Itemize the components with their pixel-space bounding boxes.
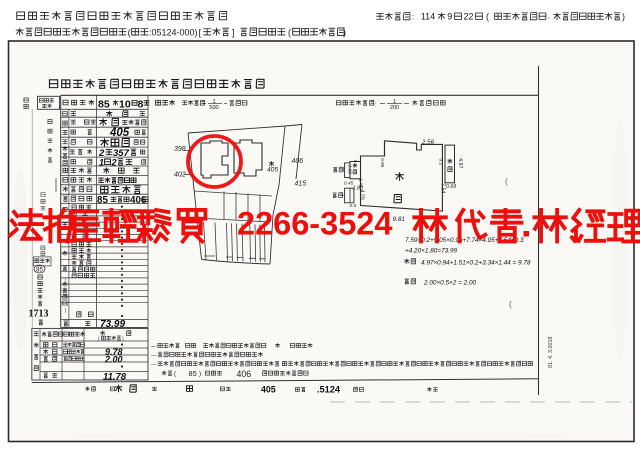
svg-text:22: 22: [464, 12, 474, 22]
svg-text:1: 1: [393, 99, 396, 105]
svg-text:+4.20×1.80=73.99: +4.20×1.80=73.99: [405, 248, 458, 255]
svg-text:(: (: [509, 300, 512, 309]
svg-text:(: (: [128, 28, 131, 38]
svg-text:85: 85: [189, 369, 197, 378]
svg-text:85: 85: [36, 267, 43, 273]
svg-text:.5124: .5124: [317, 385, 341, 395]
svg-text:0.2: 0.2: [438, 159, 444, 166]
svg-text::05124-000): :05124-000): [149, 28, 198, 38]
svg-text:85: 85: [97, 195, 108, 206]
svg-text:0.69: 0.69: [446, 184, 456, 190]
svg-text:398: 398: [174, 146, 186, 153]
svg-text:200: 200: [390, 105, 399, 111]
svg-text:1713: 1713: [29, 309, 49, 320]
svg-text:0.96: 0.96: [379, 158, 385, 168]
svg-text:,: ,: [548, 13, 550, 20]
svg-text:2266-3524: 2266-3524: [237, 206, 392, 242]
svg-text::: :: [412, 13, 414, 22]
svg-text:): ): [199, 371, 201, 378]
svg-text:7.54: 7.54: [440, 183, 446, 194]
svg-text:2.56: 2.56: [421, 139, 435, 146]
svg-text:9: 9: [447, 12, 452, 22]
svg-text:9.81: 9.81: [393, 216, 406, 223]
svg-text:2.00×0.5×2 = 2.00: 2.00×0.5×2 = 2.00: [423, 280, 477, 287]
svg-text:1: 1: [212, 99, 215, 105]
svg-text:405: 405: [267, 167, 278, 174]
svg-text:—: —: [151, 344, 157, 350]
svg-text:406: 406: [292, 158, 304, 165]
svg-text:405: 405: [261, 385, 276, 395]
svg-text:500: 500: [209, 105, 218, 111]
svg-text:—: —: [151, 362, 157, 368]
svg-text:405: 405: [109, 127, 130, 139]
svg-text:(: (: [505, 177, 508, 186]
svg-text:]: ]: [232, 28, 235, 38]
svg-text:0.2: 0.2: [353, 160, 358, 167]
svg-text:(: (: [486, 12, 489, 22]
svg-text:11.78: 11.78: [103, 372, 127, 383]
svg-text:—: —: [151, 353, 157, 359]
svg-text:81. 4. 3.0018: 81. 4. 3.0018: [548, 337, 554, 368]
svg-text:415: 415: [295, 181, 307, 188]
svg-text:10: 10: [119, 99, 131, 111]
svg-text:(: (: [288, 28, 291, 38]
svg-text:1: 1: [99, 158, 104, 168]
svg-text:2.00: 2.00: [348, 165, 353, 174]
svg-text:0.45: 0.45: [344, 181, 354, 187]
svg-text:402: 402: [174, 172, 186, 179]
svg-text:2.00: 2.00: [104, 355, 123, 365]
svg-text:): ): [343, 28, 346, 38]
svg-text:): ): [622, 12, 625, 22]
svg-text:73.99: 73.99: [100, 319, 125, 330]
svg-text:4.97×0.94+1.51×0.2+3.34×1.44 =: 4.97×0.94+1.51×0.2+3.34×1.44 = 9.78: [421, 260, 531, 267]
svg-text:85: 85: [98, 99, 110, 111]
svg-text:406: 406: [237, 369, 252, 379]
svg-text:4.97: 4.97: [457, 158, 463, 169]
svg-text:8: 8: [138, 99, 144, 111]
svg-text:1.44: 1.44: [359, 179, 364, 188]
svg-text:114: 114: [421, 12, 435, 22]
svg-text:2: 2: [111, 158, 117, 168]
